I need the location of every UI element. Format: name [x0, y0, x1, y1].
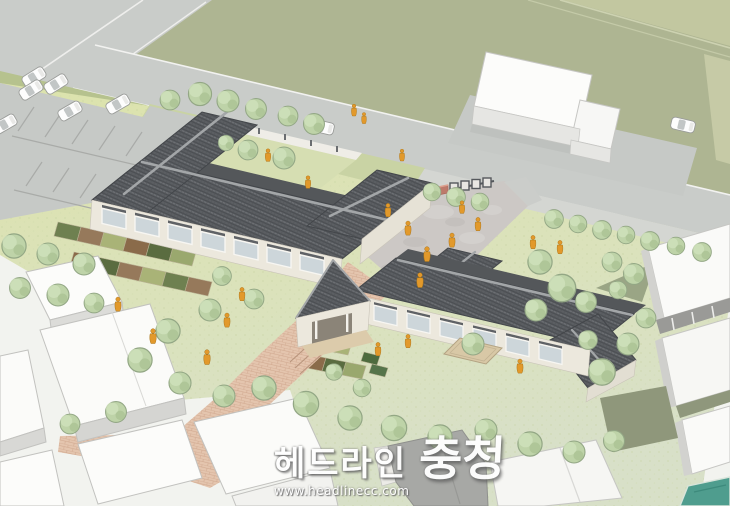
watermark-title: 헤드라인 충청: [274, 436, 506, 483]
watermark-title-part2: 충청: [418, 436, 507, 483]
rendering-scene: [0, 0, 730, 506]
watermark: 헤드라인 충청 www.headlinecc.com: [274, 436, 506, 497]
watermark-title-part1: 헤드라인: [274, 447, 407, 481]
architectural-rendering: 헤드라인 충청 www.headlinecc.com: [0, 0, 730, 506]
